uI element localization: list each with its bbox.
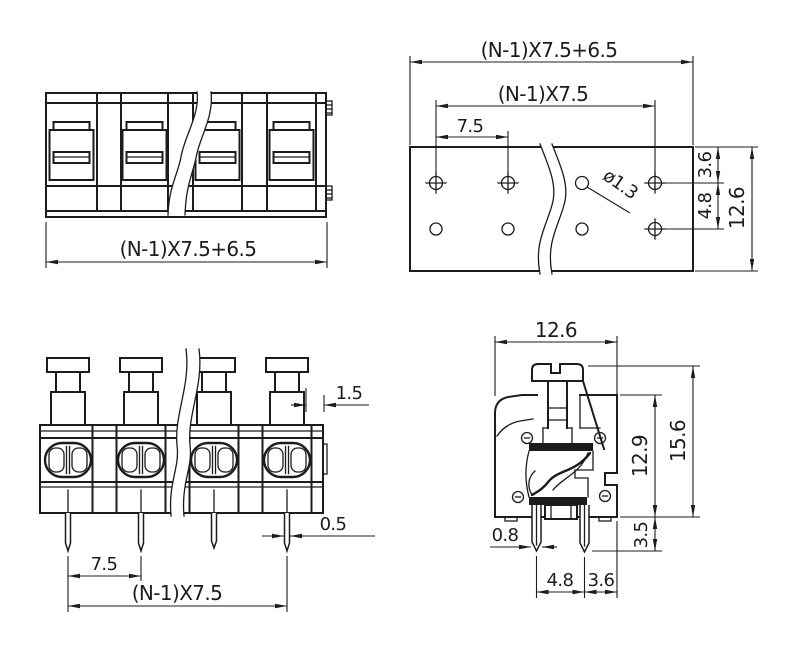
dim-label-pin-pitch: 7.5 xyxy=(91,554,118,575)
dim-label-side-body-height: 12.9 xyxy=(628,435,652,477)
dim-pin-pitch: 7.5 xyxy=(68,554,141,612)
dim-side-body-height: 12.9 xyxy=(628,395,655,517)
solder-pins xyxy=(532,505,589,552)
dim-label-plan-depth: 12.6 xyxy=(725,187,749,229)
dim-plan-pitch: 7.5 xyxy=(436,116,508,137)
dim-side-pin-length: 3.5 xyxy=(631,517,655,551)
dim-side-pin-edge-offset: 3.6 xyxy=(585,570,618,592)
actuator-plunger xyxy=(532,364,604,449)
terminal-block-drawing: (N-1)X7.5+6.5 ø1.3 xyxy=(0,0,800,667)
dim-label-side-pin-edge-offset: 3.6 xyxy=(588,570,615,591)
dim-hole-diameter: ø1.3 xyxy=(587,165,642,213)
dim-side-height: 15.6 xyxy=(666,366,693,517)
dim-front-overall: (N-1)X7.5+6.5 xyxy=(46,222,327,268)
dim-label-side-height: 15.6 xyxy=(666,420,690,462)
dim-label-side-pin-length: 3.5 xyxy=(631,522,652,549)
dim-label-pin-span: (N-1)X7.5 xyxy=(132,581,223,605)
dim-label-side-pin-width: 0.8 xyxy=(492,525,519,546)
dim-label-plan-row-spacing: 4.8 xyxy=(695,192,716,219)
front-view: (N-1)X7.5+6.5 xyxy=(46,92,332,268)
dim-label-side-pin-spacing: 4.8 xyxy=(547,570,574,591)
dim-label-front-overall: (N-1)X7.5+6.5 xyxy=(120,237,257,261)
dim-plan-row-offset: 3.6 xyxy=(695,147,718,183)
actuator-plungers xyxy=(47,358,308,425)
dim-actuator-step: 1.5 xyxy=(291,383,369,412)
dim-label-plan-span: (N-1)X7.5 xyxy=(498,82,589,106)
actuated-front-view: 1.5 0.5 7.5 (N-1)X7.5 xyxy=(40,349,375,612)
dim-label-actuator-step: 1.5 xyxy=(336,383,363,404)
side-section-view: 12.6 15.6 12.9 3.5 0.8 xyxy=(490,318,700,598)
dim-side-width: 12.6 xyxy=(495,318,617,396)
dim-plan-row-spacing: 4.8 xyxy=(695,183,718,229)
dim-plan-span: (N-1)X7.5 xyxy=(436,82,655,106)
dim-side-pin-spacing: 4.8 xyxy=(537,556,585,598)
break-line xyxy=(538,144,565,274)
dim-side-pin-width: 0.8 xyxy=(490,525,557,547)
dim-label-plan-row-offset: 3.6 xyxy=(695,151,716,178)
dim-label-plan-overall: (N-1)X7.5+6.5 xyxy=(481,38,618,62)
dim-plan-depth: 12.6 xyxy=(725,147,752,271)
dim-plan-overall: (N-1)X7.5+6.5 xyxy=(410,38,693,62)
dim-label-pin-width: 0.5 xyxy=(320,514,347,535)
technical-drawing-page: (N-1)X7.5+6.5 ø1.3 xyxy=(0,0,800,667)
spring-clamp xyxy=(526,443,593,505)
dim-pin-width: 0.5 xyxy=(262,514,375,536)
drill-plan-view: ø1.3 (N-1)X7.5+6.5 (N-1)X7.5 7.5 3.6 xyxy=(410,38,758,274)
dim-label-plan-pitch: 7.5 xyxy=(457,116,484,137)
break-line xyxy=(171,349,200,516)
dim-label-side-width: 12.6 xyxy=(535,318,577,342)
break-line xyxy=(168,92,211,215)
